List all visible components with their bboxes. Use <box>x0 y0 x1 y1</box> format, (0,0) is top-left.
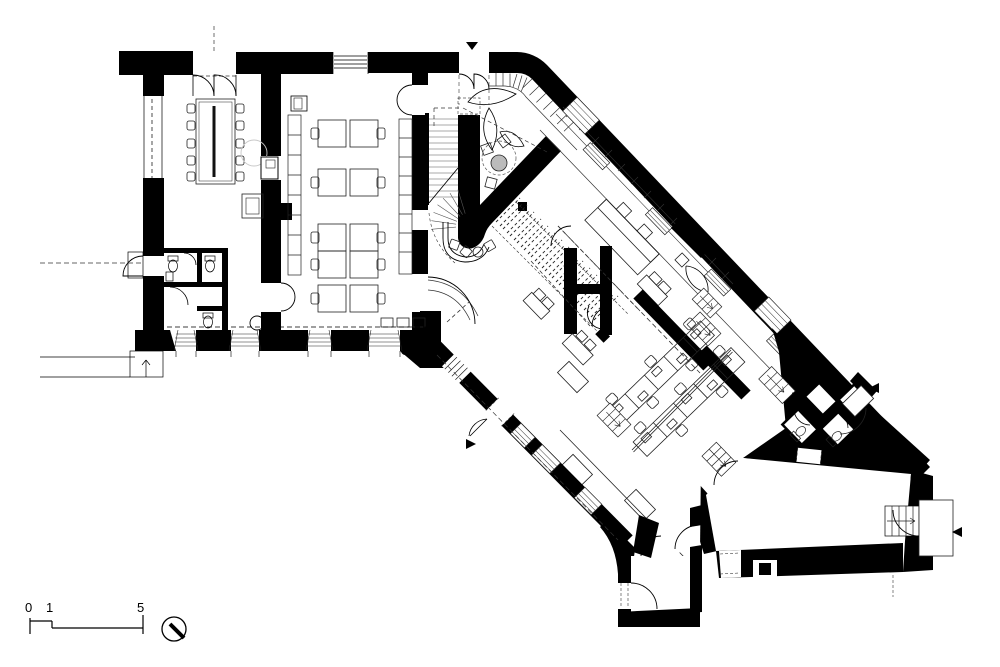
svg-text:0: 0 <box>25 600 32 615</box>
svg-text:1: 1 <box>46 600 53 615</box>
svg-text:5: 5 <box>137 600 144 615</box>
